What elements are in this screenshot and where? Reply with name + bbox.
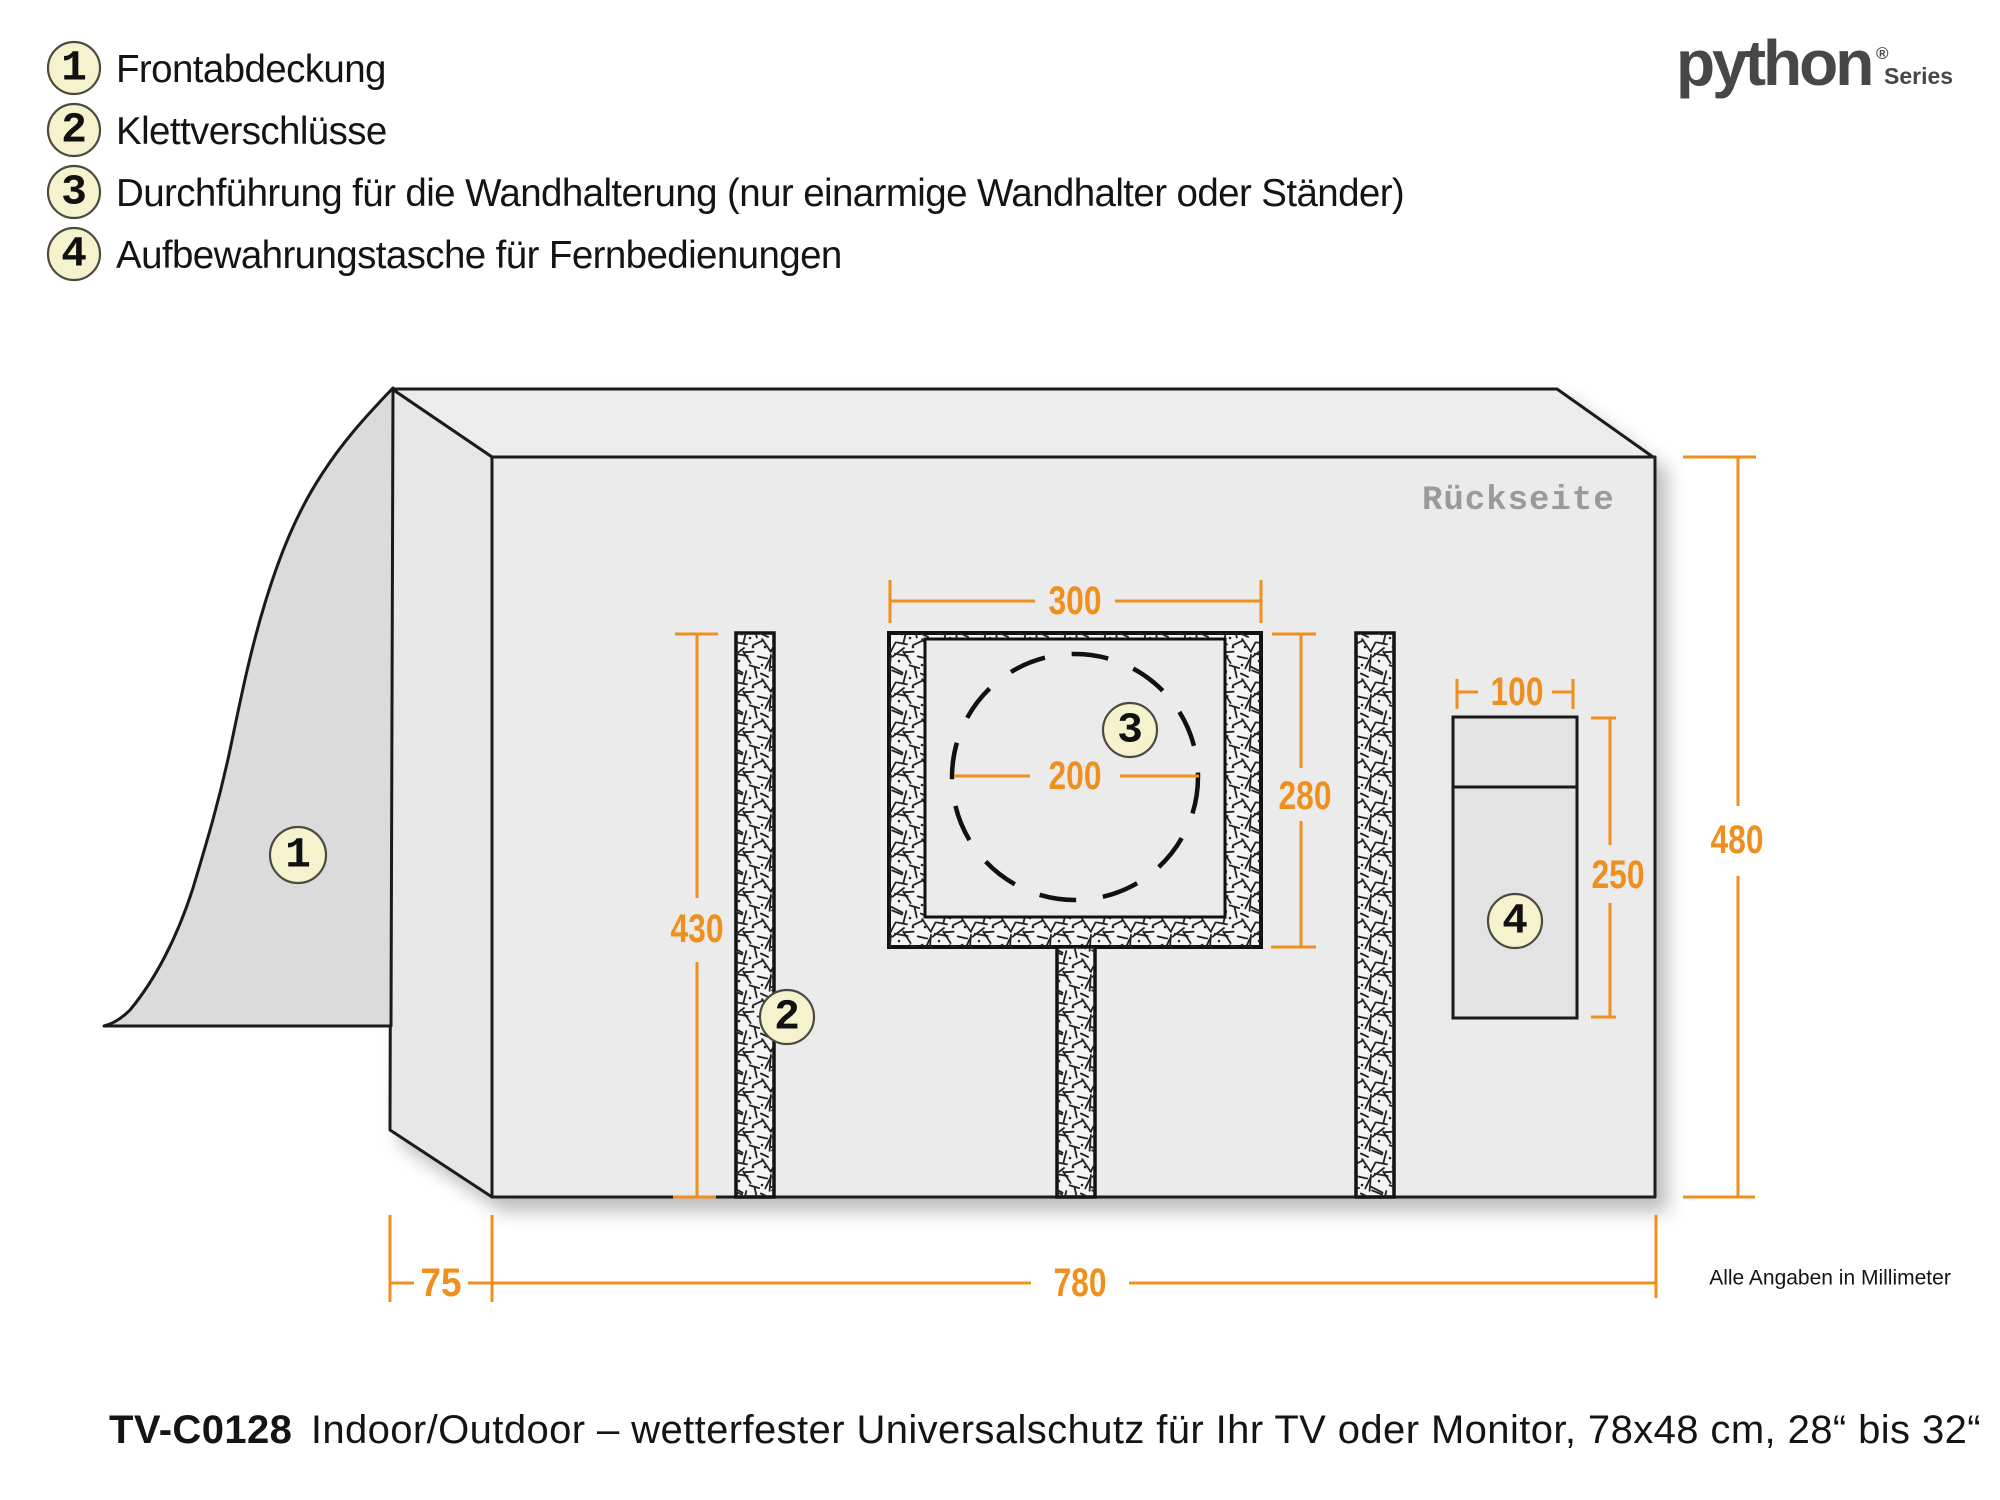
svg-text:Frontabdeckung: Frontabdeckung [116,48,386,91]
svg-text:Rückseite: Rückseite [1422,482,1615,520]
svg-text:480: 480 [1711,818,1764,862]
svg-text:Klettverschlüsse: Klettverschlüsse [116,110,387,153]
svg-text:780: 780 [1054,1261,1107,1305]
svg-text:python: python [1676,27,1871,99]
svg-text:Series: Series [1884,63,1953,89]
svg-text:2: 2 [61,106,87,155]
svg-text:100: 100 [1491,670,1544,714]
svg-text:3: 3 [61,168,87,217]
svg-text:3: 3 [1117,706,1143,755]
svg-text:1: 1 [285,831,311,880]
svg-text:250: 250 [1592,853,1645,897]
svg-text:Durchführung für die Wandhalte: Durchführung für die Wandhalterung (nur … [116,172,1404,215]
svg-text:®: ® [1876,44,1889,63]
svg-text:4: 4 [1502,897,1528,946]
svg-text:4: 4 [61,230,87,279]
svg-text:300: 300 [1049,579,1102,623]
svg-text:TV-C0128 Indoor/Outdoor – wett: TV-C0128 Indoor/Outdoor – wetterfester U… [109,1408,1981,1452]
svg-text:430: 430 [671,907,724,951]
svg-text:280: 280 [1279,774,1332,818]
svg-text:2: 2 [774,993,800,1042]
svg-text:Aufbewahrungstasche für Fernbe: Aufbewahrungstasche für Fernbedienungen [116,234,842,277]
svg-text:75: 75 [421,1261,462,1305]
svg-text:Alle Angaben in Millimeter: Alle Angaben in Millimeter [1709,1267,1951,1290]
svg-text:1: 1 [61,44,87,93]
svg-text:200: 200 [1049,754,1102,798]
